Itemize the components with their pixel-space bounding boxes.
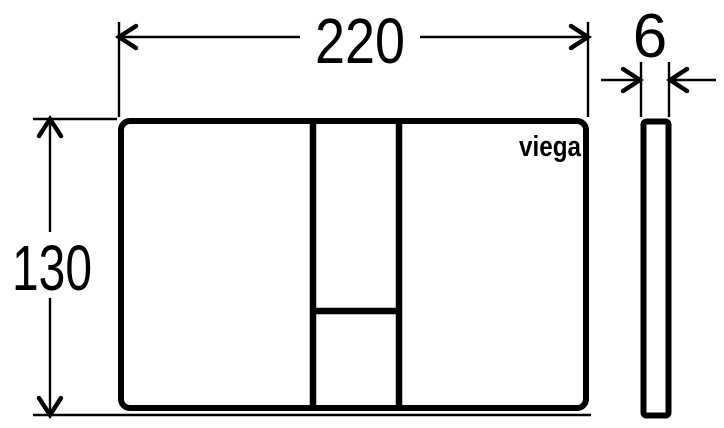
flush-plate-outline <box>121 121 586 408</box>
technical-drawing: viega 220 130 <box>0 0 724 428</box>
dimension-thickness: 6 <box>601 2 716 117</box>
dimension-label-height: 130 <box>12 232 92 304</box>
side-profile-outline <box>644 122 669 416</box>
dimension-label-thickness: 6 <box>633 2 667 71</box>
drawing-canvas: viega 220 130 <box>0 0 724 428</box>
front-view: viega <box>121 120 586 409</box>
dimension-label-width: 220 <box>315 5 405 77</box>
side-view <box>644 122 669 416</box>
brand-logo: viega <box>519 131 582 163</box>
dimension-width: 220 <box>119 5 588 117</box>
